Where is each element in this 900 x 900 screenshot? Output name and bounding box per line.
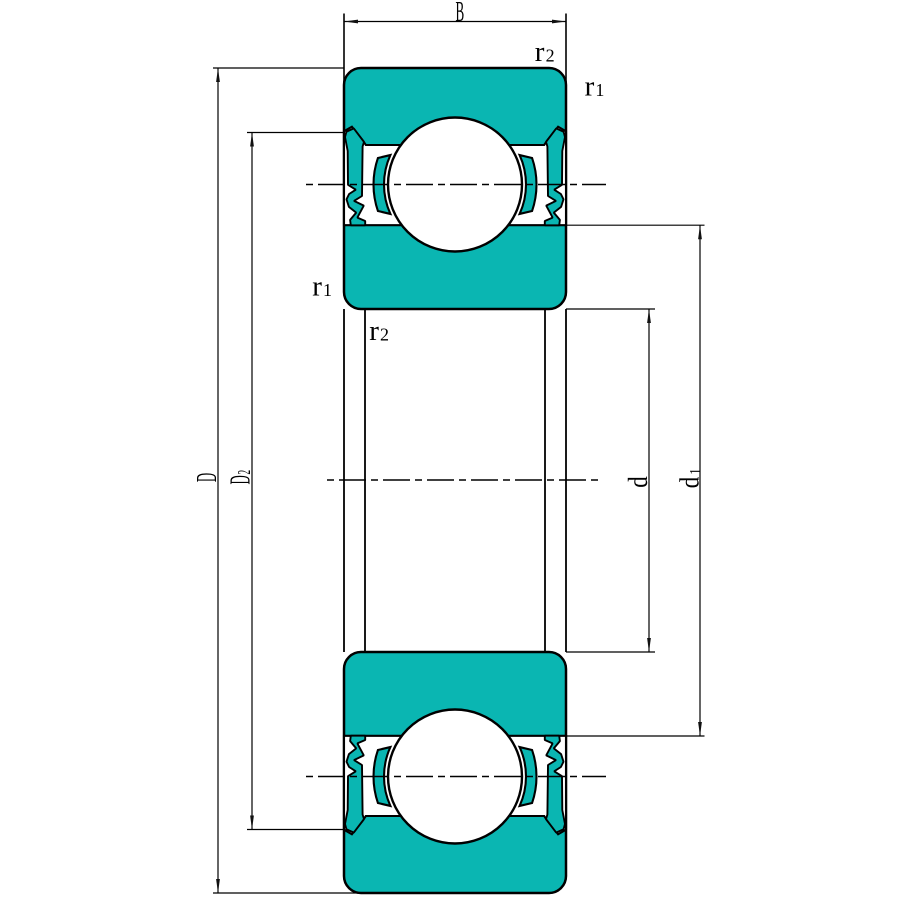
svg-text:1: 1 [323, 280, 332, 300]
svg-text:2: 2 [546, 46, 555, 66]
svg-text:2: 2 [235, 470, 255, 475]
svg-text:D: D [225, 475, 256, 484]
svg-text:1: 1 [687, 468, 704, 475]
svg-text:r: r [369, 315, 379, 347]
svg-text:r: r [535, 36, 545, 68]
svg-text:D: D [191, 473, 222, 482]
svg-text:d: d [676, 476, 705, 488]
svg-text:B: B [455, 0, 464, 28]
svg-text:1: 1 [595, 80, 604, 100]
svg-text:r: r [585, 70, 595, 102]
svg-text:d: d [624, 476, 653, 488]
svg-text:2: 2 [380, 325, 389, 345]
svg-text:r: r [312, 271, 322, 303]
